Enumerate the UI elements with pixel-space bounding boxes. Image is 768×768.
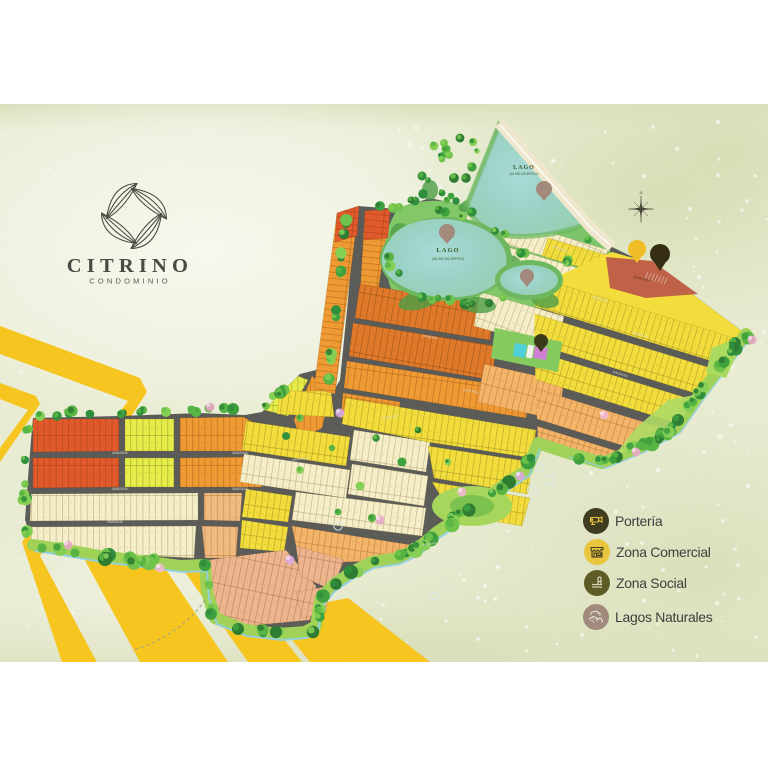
svg-text:LAGO: LAGO bbox=[513, 165, 535, 171]
svg-text:(34.000 M2 APROX): (34.000 M2 APROX) bbox=[509, 172, 538, 176]
svg-text:CITRINO: CITRINO bbox=[67, 255, 193, 277]
svg-text:Portería: Portería bbox=[615, 513, 663, 529]
svg-text:Zona Comercial: Zona Comercial bbox=[616, 544, 711, 560]
svg-text:MANZANA: MANZANA bbox=[112, 487, 128, 491]
svg-text:Lagos Naturales: Lagos Naturales bbox=[615, 609, 713, 625]
svg-text:Zona Social: Zona Social bbox=[616, 575, 687, 591]
svg-text:(28.000 M2 APROX): (28.000 M2 APROX) bbox=[432, 257, 464, 261]
svg-text:MANZANA: MANZANA bbox=[232, 451, 248, 455]
svg-text:MANZANA: MANZANA bbox=[232, 487, 248, 491]
svg-text:CONDOMINIO: CONDOMINIO bbox=[89, 277, 171, 286]
svg-text:MANZANA: MANZANA bbox=[112, 451, 128, 455]
svg-text:MANZANA: MANZANA bbox=[107, 520, 123, 524]
svg-text:LAGO: LAGO bbox=[436, 247, 459, 254]
